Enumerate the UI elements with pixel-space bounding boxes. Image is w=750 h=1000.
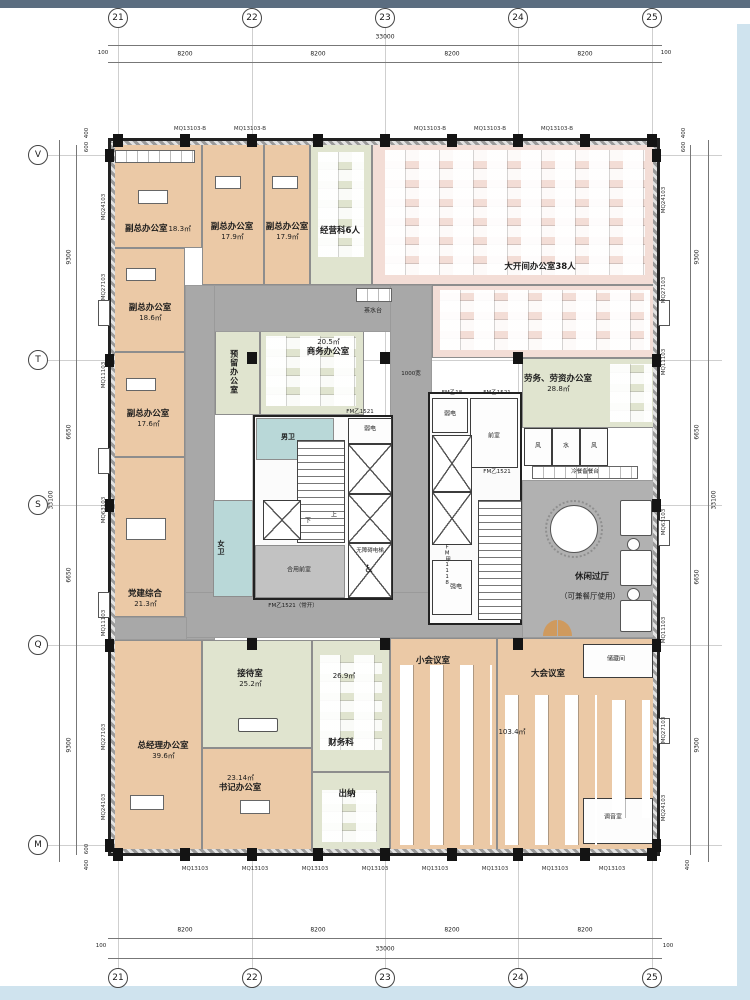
- column: [105, 639, 114, 652]
- column: [580, 134, 590, 147]
- window-tag-left-4: MQ63103: [101, 497, 107, 524]
- dim-top-seg-1: 8200: [177, 52, 192, 59]
- label-fm-yi1521-a: FM乙1521: [483, 390, 510, 396]
- label-fm-yi1521-b: FM乙1521: [483, 469, 510, 475]
- dim-bottom-end-right: 100: [663, 943, 674, 949]
- wheelchair-icon: ♿: [364, 564, 374, 577]
- column: [580, 848, 590, 861]
- room-label-large-meeting: 大会议室: [531, 670, 565, 680]
- dim-line-right-seg: [690, 145, 691, 855]
- label-strong-power: 强电: [450, 585, 462, 592]
- dim-line-right-total: [708, 140, 709, 862]
- top-chrome-bar: [0, 0, 750, 8]
- column: [247, 134, 257, 147]
- label-fm-yi18: FM乙18: [442, 390, 462, 396]
- dim-line-top-seg: [108, 62, 662, 63]
- column: [180, 134, 190, 147]
- dim-bottom-seg-4: 8200: [577, 928, 592, 935]
- column: [380, 134, 390, 147]
- label-stair-down: 下: [305, 519, 311, 526]
- label-fm1521-changkai: FM乙1521（常开）: [268, 603, 317, 609]
- column: [113, 848, 123, 861]
- bottom-chrome-band: [0, 986, 750, 1000]
- dim-bottom-end-left: 100: [96, 943, 107, 949]
- dim-right-edge-600-top: 600: [681, 142, 687, 153]
- room-label-vice-office-3: 副总办公室17.9㎡: [266, 223, 309, 243]
- label-female-wc: 女卫: [217, 540, 225, 556]
- grid-bubble-col-21-bottom: 21: [108, 968, 128, 988]
- dim-left-seg-1: 9300: [67, 249, 74, 264]
- room-label-storage: 储藏间: [607, 657, 625, 664]
- window-tag-right-2: MQ27103: [661, 277, 667, 304]
- grid-bubble-col-23-bottom: 23: [375, 968, 395, 988]
- building-outline: [108, 138, 660, 856]
- label-shaft-air-2: 风: [591, 444, 597, 451]
- window-tag-left-2: MQ27103: [101, 274, 107, 301]
- label-stair-up: 上: [331, 513, 337, 520]
- grid-bubble-col-24-top: 24: [508, 8, 528, 28]
- column: [652, 354, 661, 367]
- dim-line-left-total: [59, 140, 60, 862]
- grid-bubble-col-22-bottom: 22: [242, 968, 262, 988]
- label-fm-jia1118: FM甲1118: [444, 544, 450, 586]
- dim-top-seg-4: 8200: [577, 52, 592, 59]
- label-corridor-width: 1000宽: [401, 371, 421, 377]
- grid-bubble-row-V: V: [28, 145, 48, 165]
- column: [247, 352, 257, 364]
- room-label-commerce: 20.5㎡商务办公室: [307, 338, 350, 358]
- dim-right-seg-4: 9300: [695, 737, 702, 752]
- room-label-reception: 接待室25.2㎡: [237, 670, 263, 690]
- room-label-vice-office-2: 副总办公室17.9㎡: [211, 223, 254, 243]
- room-label-vice-office-5: 副总办公室17.6㎡: [127, 410, 170, 430]
- window-tag-bottom-1: MQ13103: [182, 866, 209, 872]
- window-tag-bottom-2: MQ13103: [242, 866, 269, 872]
- column: [247, 638, 257, 650]
- window-tag-right-6: MQ27103: [661, 717, 667, 744]
- dim-right-seg-3: 6650: [695, 569, 702, 584]
- window-tag-right-1: MQ24103: [661, 187, 667, 214]
- column: [652, 839, 661, 852]
- dim-right-edge-400-bottom: 400: [685, 860, 691, 871]
- room-label-large-meeting-area: 103.4㎡: [498, 728, 525, 736]
- window-tag-left-3: MQ11103: [101, 362, 107, 389]
- dim-bottom-seg-3: 8200: [444, 928, 459, 935]
- grid-bubble-col-22-top: 22: [242, 8, 262, 28]
- window-bay-right-1: [658, 300, 670, 326]
- dim-top-seg-3: 8200: [444, 52, 459, 59]
- window-tag-right-4: MQ63103: [661, 509, 667, 536]
- column: [652, 499, 661, 512]
- window-tag-top-4: MQ13103-B: [474, 126, 506, 132]
- column: [380, 638, 390, 650]
- room-label-gm-office: 总经理办公室39.6㎡: [137, 742, 188, 762]
- right-chrome-band: [737, 24, 750, 1000]
- dim-left-edge-600-bottom: 600: [84, 844, 90, 855]
- grid-bubble-row-Q: Q: [28, 635, 48, 655]
- dim-right-edge-400-top: 400: [681, 128, 687, 139]
- window-tag-bottom-6: MQ13103: [482, 866, 509, 872]
- dim-top-end-right: 100: [661, 50, 672, 56]
- room-label-vice-office-4: 副总办公室18.6㎡: [129, 304, 172, 324]
- room-label-labor: 劳务、劳资办公室28.8㎡: [524, 375, 592, 395]
- dim-bottom-seg-2: 8200: [310, 928, 325, 935]
- room-label-secretary: 23.14㎡书记办公室: [219, 774, 262, 794]
- window-tag-top-3: MQ13103-B: [414, 126, 446, 132]
- window-tag-bottom-3: MQ13103: [302, 866, 329, 872]
- dim-bottom-total: 33000: [375, 947, 394, 954]
- column: [313, 134, 323, 147]
- dim-left-edge-400-bottom: 400: [84, 860, 90, 871]
- room-label-sound-control: 调音室: [604, 815, 622, 822]
- dim-line-top-total: [108, 45, 662, 46]
- label-weak-power-left: 弱电: [364, 427, 376, 434]
- window-tag-bottom-8: MQ13103: [599, 866, 626, 872]
- label-accessible-elevator: 无障碍电梯: [356, 548, 384, 554]
- room-label-cashier: 出纳: [338, 790, 355, 800]
- dim-top-end-left: 100: [98, 50, 109, 56]
- label-fm-yi1521-c: FM乙1521: [346, 409, 373, 415]
- window-tag-right-5: MQ11103: [661, 617, 667, 644]
- window-tag-left-1: MQ24103: [101, 194, 107, 221]
- dim-top-total: 33000: [375, 35, 394, 42]
- column: [180, 848, 190, 861]
- window-tag-left-6: MQ27103: [101, 724, 107, 751]
- column: [647, 134, 657, 147]
- grid-bubble-row-T: T: [28, 350, 48, 370]
- dim-line-bottom-total: [108, 958, 662, 959]
- dim-left-seg-2: 6650: [67, 424, 74, 439]
- grid-bubble-col-23-top: 23: [375, 8, 395, 28]
- room-label-business-section: 经营科6人: [320, 227, 360, 237]
- window-tag-right-7: MQ24103: [661, 795, 667, 822]
- column: [652, 149, 661, 162]
- label-tea-counter: 茶水台: [364, 309, 382, 316]
- label-shaft-water: 水: [563, 444, 569, 451]
- window-tag-bottom-7: MQ13103: [542, 866, 569, 872]
- window-tag-right-3: MQ11103: [661, 349, 667, 376]
- dim-line-bottom-seg: [108, 938, 662, 939]
- dim-top-seg-2: 8200: [310, 52, 325, 59]
- window-tag-top-2: MQ13103-B: [234, 126, 266, 132]
- column: [513, 134, 523, 147]
- column: [313, 848, 323, 861]
- dim-left-total: 33100: [49, 490, 56, 509]
- dim-right-seg-2: 6650: [695, 424, 702, 439]
- grid-bubble-col-25-top: 25: [642, 8, 662, 28]
- column: [513, 352, 523, 364]
- window-tag-left-7: MQ24103: [101, 794, 107, 821]
- window-bay-left-2: [98, 448, 110, 474]
- dim-left-seg-3: 6650: [67, 567, 74, 582]
- column: [113, 134, 123, 147]
- column: [380, 848, 390, 861]
- label-buffet-counter: 冷餐备餐台: [571, 469, 599, 475]
- column: [513, 848, 523, 861]
- column: [105, 839, 114, 852]
- room-label-leisure-hall: 休闲过厅: [575, 573, 609, 583]
- grid-bubble-col-25-bottom: 25: [642, 968, 662, 988]
- room-label-vice-office-1: 副总办公室18.3㎡: [125, 225, 191, 235]
- grid-bubble-row-M: M: [28, 835, 48, 855]
- dim-left-seg-4: 9300: [67, 737, 74, 752]
- column: [447, 134, 457, 147]
- column: [447, 848, 457, 861]
- floor-plan-page: { "grid": {"cols": ["21","22","23","24",…: [0, 0, 750, 1000]
- dim-line-left-seg: [76, 145, 77, 855]
- dim-bottom-seg-1: 8200: [177, 928, 192, 935]
- label-shaft-air-1: 风: [535, 444, 541, 451]
- dim-left-edge-400-top: 400: [84, 128, 90, 139]
- dim-right-seg-1: 9300: [695, 249, 702, 264]
- room-label-party-building: 党建综合21.3㎡: [128, 590, 162, 610]
- column: [513, 638, 523, 650]
- column: [105, 149, 114, 162]
- grid-bubble-row-S: S: [28, 495, 48, 515]
- room-label-finance-area: 26.9㎡: [333, 672, 356, 680]
- label-male-wc: 男卫: [281, 433, 295, 441]
- column: [652, 639, 661, 652]
- room-label-small-meeting: 小会议室: [416, 657, 450, 667]
- window-tag-top-1: MQ13103-B: [174, 126, 206, 132]
- window-bay-left-1: [98, 300, 110, 326]
- window-tag-bottom-4: MQ13103: [362, 866, 389, 872]
- room-label-finance: 财务科: [328, 739, 354, 749]
- room-label-leisure-sub: （可兼餐厅使用）: [560, 593, 620, 602]
- column: [380, 352, 390, 364]
- room-label-open-office: 大开间办公室38人: [504, 263, 575, 273]
- label-weak-power-right: 弱电: [444, 412, 456, 419]
- label-shared-front-room: 合用前室: [287, 568, 311, 575]
- window-tag-left-5: MQ11103: [101, 610, 107, 637]
- window-tag-top-5: MQ13103-B: [541, 126, 573, 132]
- room-label-reserved-office: 预留办公室: [229, 350, 238, 395]
- label-front-room: 前室: [488, 434, 500, 441]
- window-tag-bottom-5: MQ13103: [422, 866, 449, 872]
- dim-left-edge-600-top: 600: [84, 142, 90, 153]
- grid-bubble-col-21-top: 21: [108, 8, 128, 28]
- grid-bubble-col-24-bottom: 24: [508, 968, 528, 988]
- column: [247, 848, 257, 861]
- dim-right-total: 33100: [712, 490, 719, 509]
